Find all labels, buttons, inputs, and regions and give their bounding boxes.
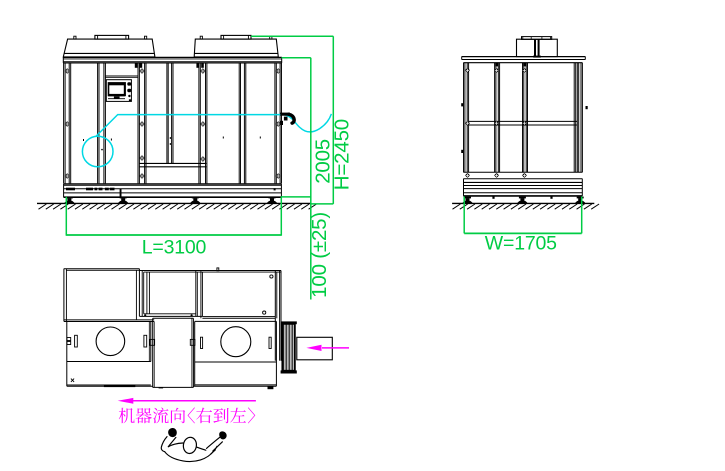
svg-text:L=3100: L=3100 <box>142 237 207 259</box>
svg-text:H=2450: H=2450 <box>331 119 354 190</box>
svg-text:W=1705: W=1705 <box>485 233 557 255</box>
svg-text:100 (±25): 100 (±25) <box>308 212 331 298</box>
